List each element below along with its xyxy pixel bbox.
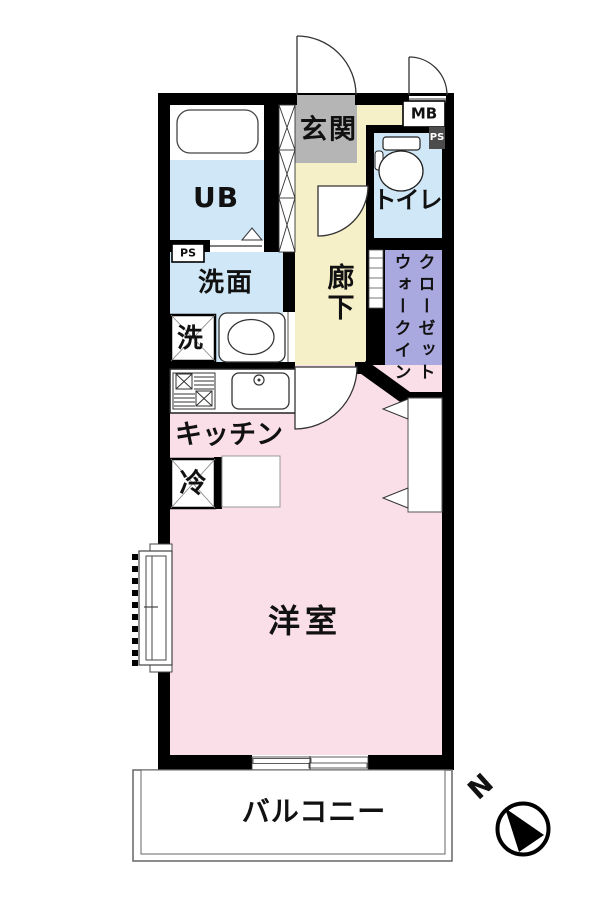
pipe-shaft-hatch (279, 105, 295, 252)
room-label-toilet: トイレ (373, 188, 442, 212)
closet-opening (369, 250, 383, 308)
wall-bottom-left (158, 755, 252, 770)
label-pipe-space-right: PS (430, 133, 445, 143)
bathtub-icon (177, 110, 258, 153)
room-label-western-room: 洋室 (268, 605, 342, 637)
balcony-window-panel-right (309, 763, 367, 768)
wall-ub-shaft (264, 105, 279, 252)
label-meter-box: MB (411, 107, 437, 122)
toilet-tank-icon (383, 137, 420, 150)
stove-icon (173, 373, 215, 409)
room-label-closet-column-right: クローゼット (416, 253, 433, 385)
room-label-balcony: バルコニー (242, 798, 386, 826)
left-window-icon (132, 544, 172, 672)
room-label-closet-column-left: ウォークイン (392, 253, 409, 385)
wall-left-upper (158, 105, 170, 548)
floor-plan: 玄関 UB トイレ MB PS PS 洗面 洗 廊下 クローゼット ウォークイン… (0, 0, 600, 900)
closet-opening-hatch (369, 250, 383, 308)
counter-block (222, 456, 280, 507)
entrance-threshold (297, 95, 355, 105)
toilet-bowl-icon (379, 151, 423, 191)
kitchen-sink-icon (232, 373, 289, 409)
mb-door-arc (409, 57, 447, 95)
room-label-entrance: 玄関 (300, 117, 358, 144)
room-label-unit-bath: UB (193, 184, 239, 212)
storage-unit (408, 398, 442, 512)
wall-left-lower (158, 668, 170, 755)
vanity-basin-icon (228, 320, 274, 355)
wall-toilet-bottom (366, 238, 454, 250)
room-label-washroom: 洗面 (198, 270, 254, 296)
room-label-kitchen: キッチン (175, 422, 283, 449)
label-washing-machine: 洗 (177, 326, 203, 352)
corridor-strip (357, 105, 405, 127)
entrance-door-arc (297, 36, 356, 95)
wall-bottom-right (368, 755, 454, 770)
balcony-window-panel-left (253, 759, 311, 764)
compass (498, 804, 549, 855)
label-refrigerator: 冷 (180, 471, 207, 498)
room-label-corridor: 廊下 (325, 263, 352, 323)
wall-right (442, 93, 454, 770)
label-pipe-space-left: PS (180, 248, 196, 259)
